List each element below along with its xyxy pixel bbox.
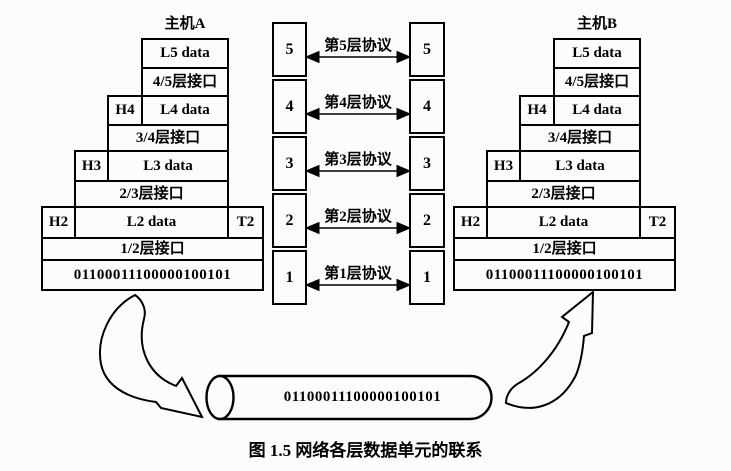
host-b-h2-header-box: H2 xyxy=(453,206,488,239)
host-a-l4-data-box: L4 data xyxy=(141,95,229,126)
host-b-title: 主机B xyxy=(553,12,641,33)
layer-5-box-right: 5 xyxy=(409,22,445,77)
layer-1-protocol-label: 第1层协议 xyxy=(302,267,414,282)
host-a-interface-1-2-box: 1/2层接口 xyxy=(41,237,264,261)
layer-2-protocol-label: 第2层协议 xyxy=(302,210,414,225)
host-a-interface-3-4-box: 3/4层接口 xyxy=(107,124,229,152)
layer-2-box-right: 2 xyxy=(409,193,445,248)
host-a-interface-2-3-box: 2/3层接口 xyxy=(74,180,229,208)
host-b-l3-data-box: L3 data xyxy=(519,150,641,182)
host-b-l2-data-box: L2 data xyxy=(486,206,641,239)
host-b-interface-4-5-box: 4/5层接口 xyxy=(553,67,641,97)
host-b-l4-data-box: L4 data xyxy=(553,95,641,126)
protocol-arrows-group xyxy=(306,52,410,291)
host-a-h4-header-box: H4 xyxy=(107,95,143,126)
host-b-interface-3-4-box: 3/4层接口 xyxy=(519,124,641,152)
host-b-h4-header-box: H4 xyxy=(519,95,555,126)
host-a-l5-data-box: L5 data xyxy=(141,38,229,69)
host-a-to-medium-curved-arrow xyxy=(100,295,202,417)
layer-5-protocol-label: 第5层协议 xyxy=(302,39,414,54)
host-a-l3-data-box: L3 data xyxy=(107,150,229,182)
host-a-t2-trailer-box: T2 xyxy=(227,206,264,239)
layer-3-protocol-label: 第3层协议 xyxy=(302,153,414,168)
host-a-interface-4-5-box: 4/5层接口 xyxy=(141,67,229,97)
host-b-stack: 主机B L5 data 4/5层接口 H4 L4 data 3/4层接口 H3 … xyxy=(453,36,678,293)
layer-3-box-right: 3 xyxy=(409,136,445,191)
figure-network-layer-data-units: 主机A L5 data 4/5层接口 H4 L4 data 3/4层接口 H3 … xyxy=(0,0,731,471)
host-a-l2-data-box: L2 data xyxy=(74,206,229,239)
host-a-h3-header-box: H3 xyxy=(74,150,109,182)
layer-4-protocol-label: 第4层协议 xyxy=(302,96,414,111)
medium-to-host-b-curved-arrow xyxy=(506,292,593,408)
host-b-t2-trailer-box: T2 xyxy=(639,206,676,239)
host-b-l5-data-box: L5 data xyxy=(553,38,641,69)
host-a-bitstream-box: 01100011100000100101 xyxy=(41,259,264,291)
host-a-stack: 主机A L5 data 4/5层接口 H4 L4 data 3/4层接口 H3 … xyxy=(41,36,266,293)
host-b-interface-1-2-box: 1/2层接口 xyxy=(453,237,676,261)
medium-bitstream-text: 01100011100000100101 xyxy=(250,389,475,406)
layer-4-box-right: 4 xyxy=(409,79,445,134)
host-b-bitstream-box: 01100011100000100101 xyxy=(453,259,676,291)
host-a-title: 主机A xyxy=(141,12,229,33)
host-b-interface-2-3-box: 2/3层接口 xyxy=(486,180,641,208)
layer-1-box-right: 1 xyxy=(409,250,445,305)
host-a-h2-header-box: H2 xyxy=(41,206,76,239)
host-b-h3-header-box: H3 xyxy=(486,150,521,182)
figure-caption: 图 1.5 网络各层数据单元的联系 xyxy=(0,436,731,461)
